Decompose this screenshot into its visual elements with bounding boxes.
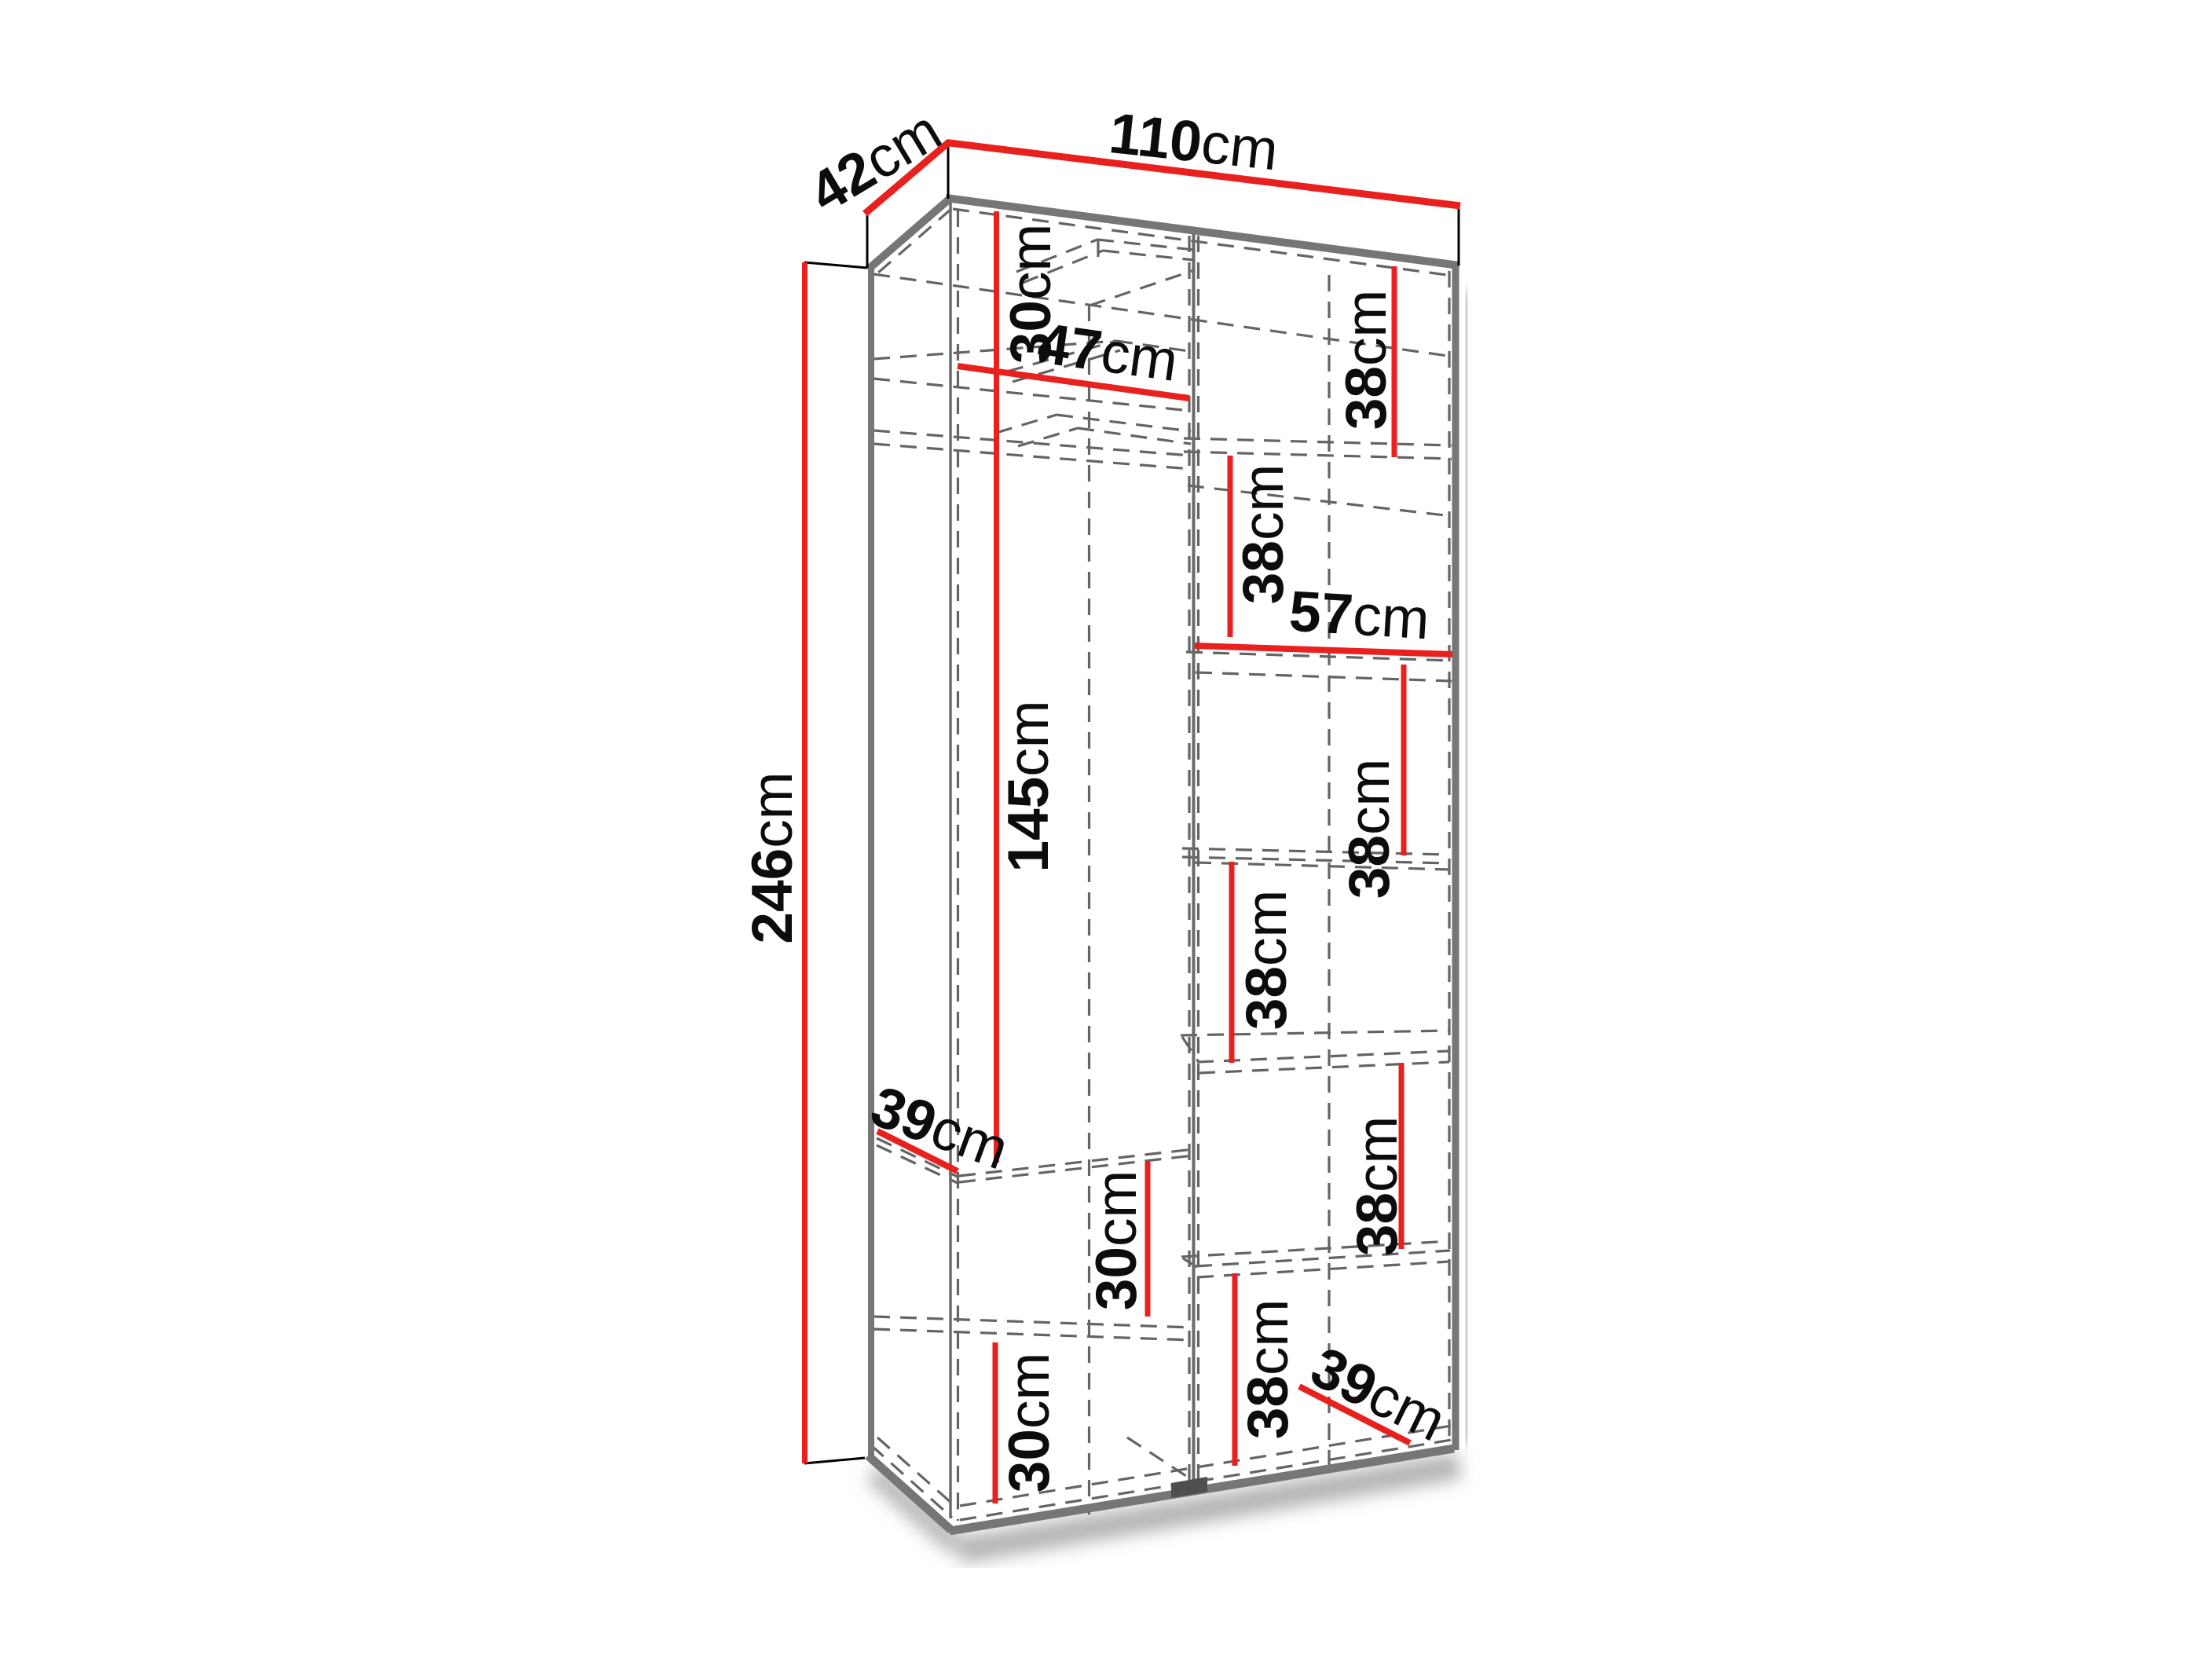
svg-text:145cm: 145cm (997, 700, 1060, 872)
svg-text:38cm: 38cm (1232, 464, 1295, 605)
svg-text:30cm: 30cm (998, 1353, 1061, 1493)
svg-text:38cm: 38cm (1335, 290, 1398, 430)
svg-text:38cm: 38cm (1346, 1116, 1409, 1257)
svg-text:246cm: 246cm (741, 771, 804, 943)
svg-text:38cm: 38cm (1338, 759, 1401, 899)
svg-text:38cm: 38cm (1236, 1299, 1300, 1440)
svg-text:57cm: 57cm (1287, 580, 1431, 652)
svg-text:30cm: 30cm (1085, 1170, 1148, 1311)
svg-text:38cm: 38cm (1235, 890, 1298, 1031)
